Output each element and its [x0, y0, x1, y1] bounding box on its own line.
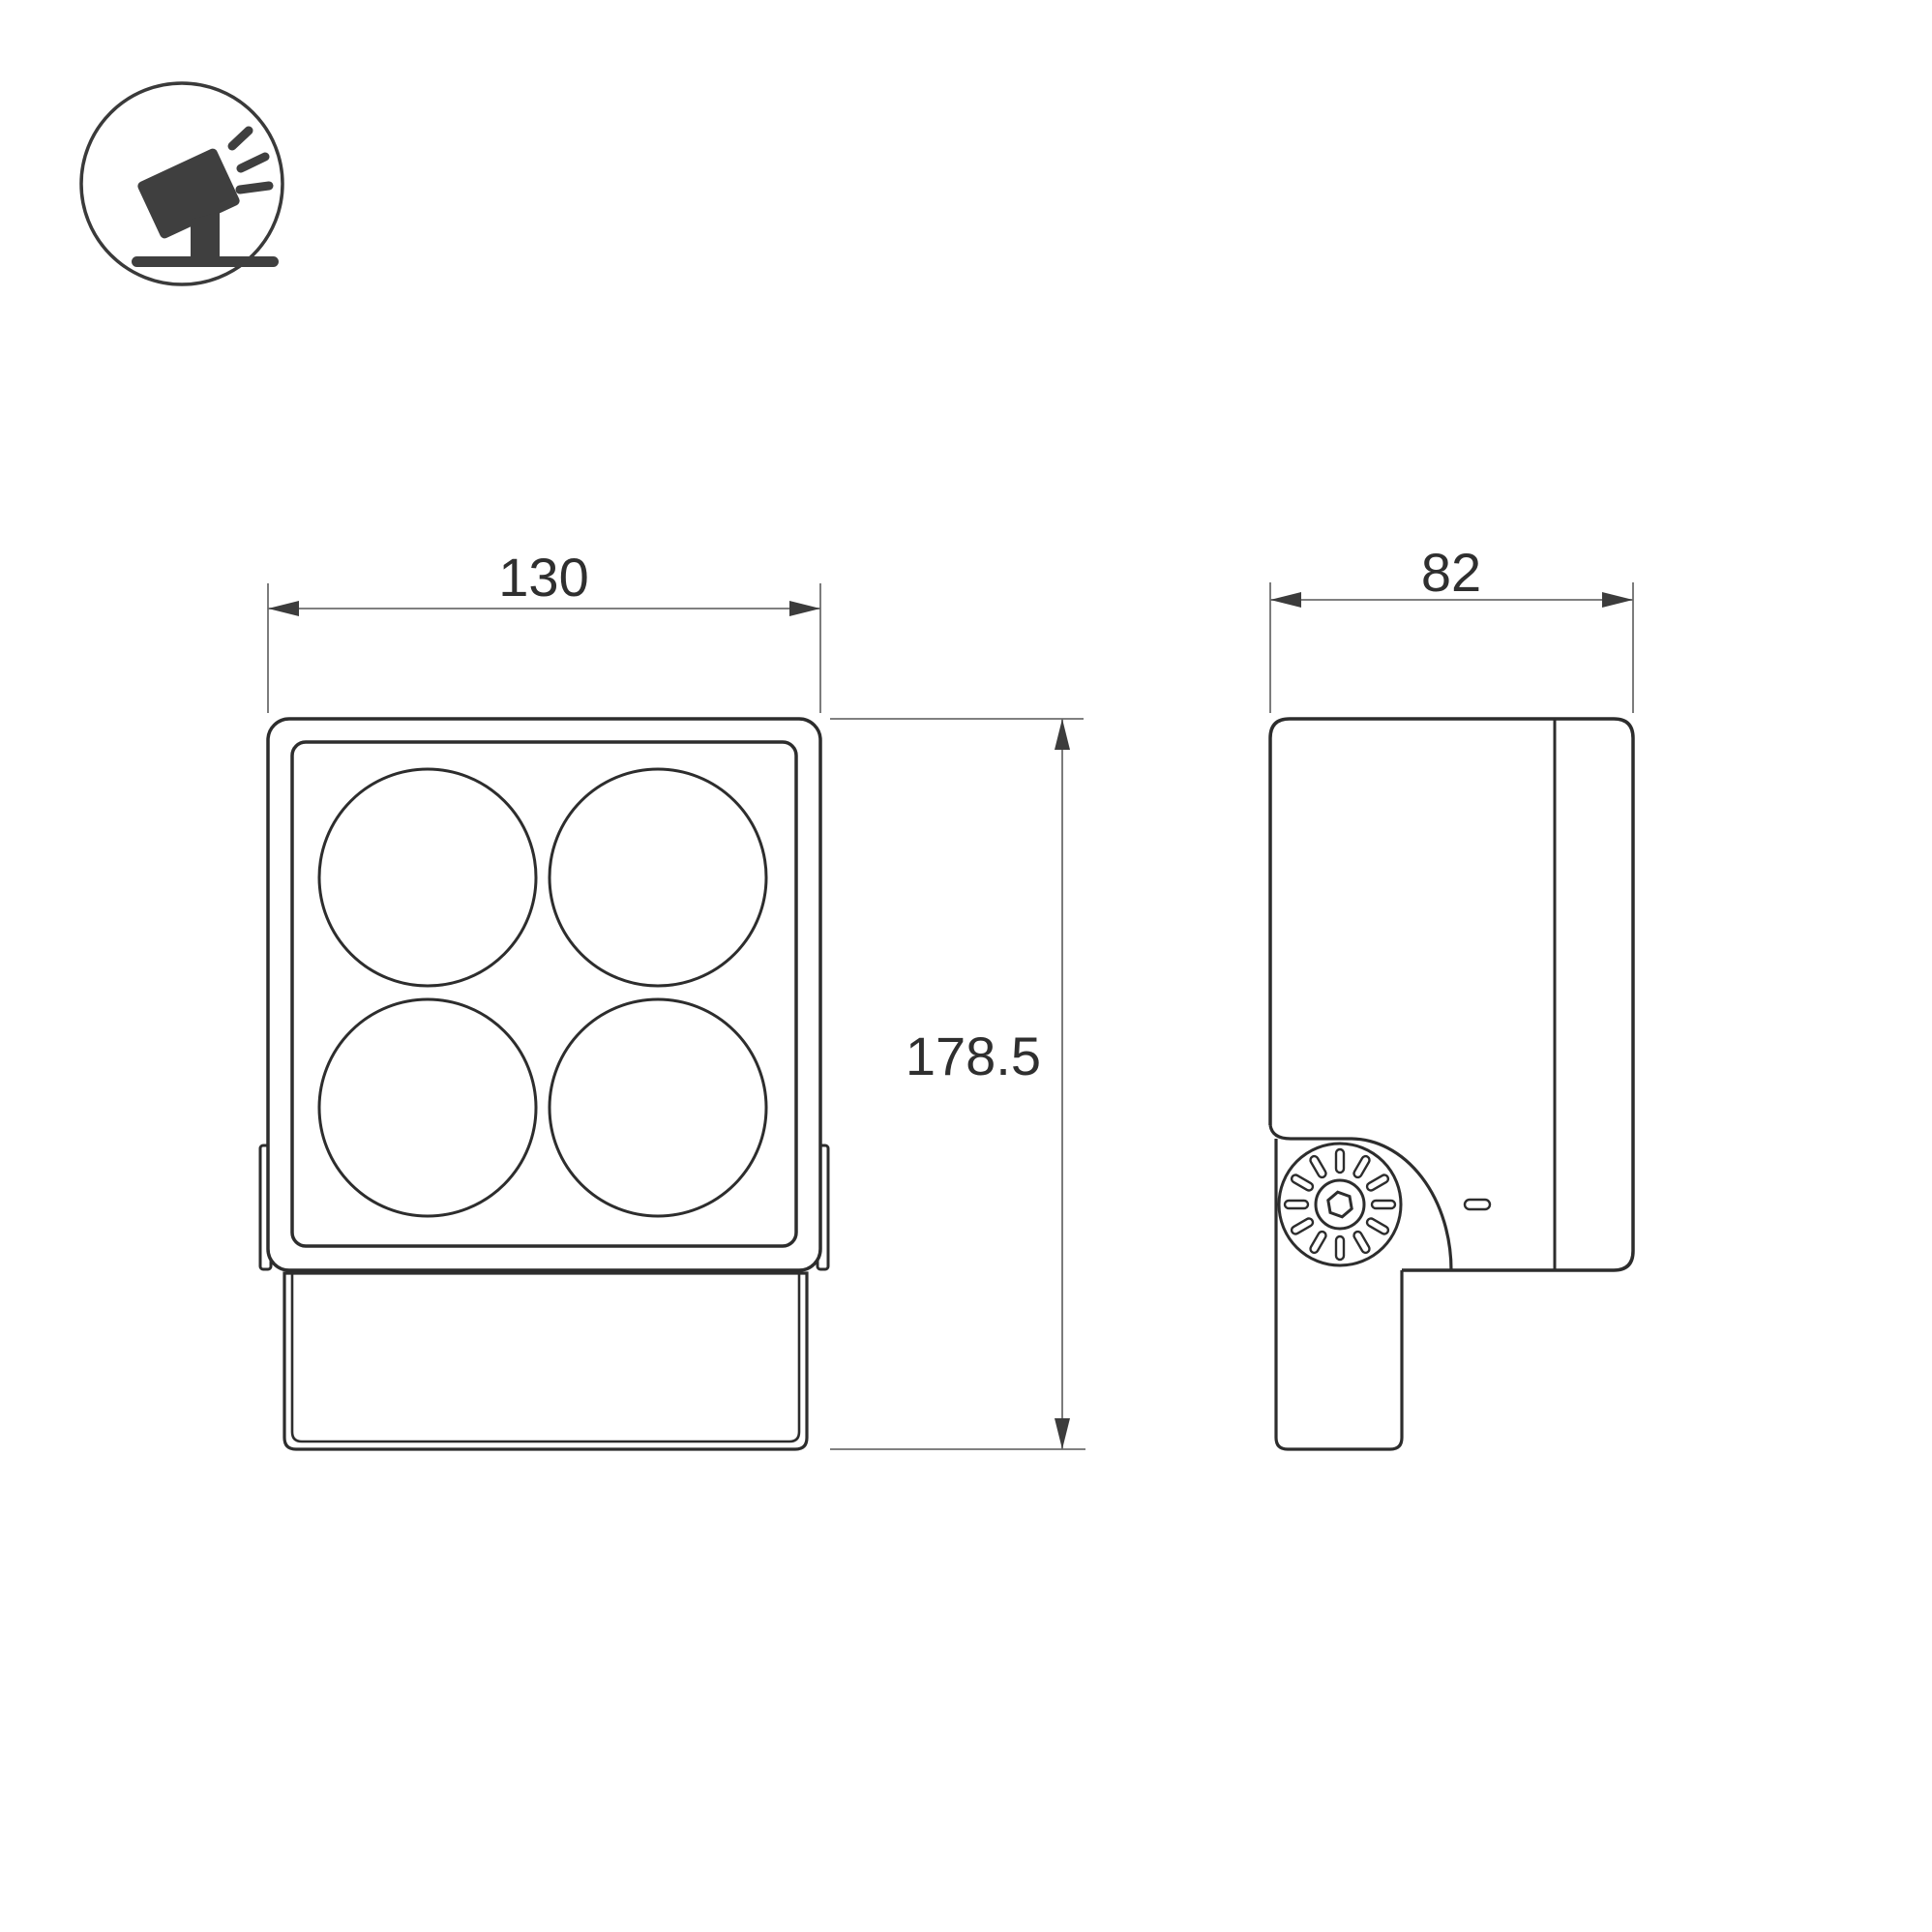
- floodlight-icon: [132, 131, 279, 267]
- floodlight-base-icon: [132, 256, 279, 267]
- floodlight-head-icon: [136, 147, 242, 240]
- front-height-dimension: 178.5: [830, 719, 1085, 1449]
- front-height-label: 178.5: [906, 1025, 1041, 1086]
- arrowhead-left-icon: [268, 601, 299, 616]
- drawing-svg: 130 178.5 82: [0, 0, 1932, 1932]
- side-view: [1270, 719, 1633, 1449]
- front-width-label: 130: [498, 547, 588, 608]
- arrowhead-right-icon: [1602, 592, 1633, 608]
- floodlight-logo-badge: [81, 83, 282, 284]
- arrowhead-left-icon: [1270, 592, 1301, 608]
- front-lower-body: [284, 1273, 807, 1449]
- pivot-knob: [1279, 1144, 1401, 1265]
- technical-drawing-page: 130 178.5 82: [0, 0, 1932, 1932]
- light-ray-icon: [241, 157, 265, 168]
- front-view: [260, 719, 828, 1449]
- arrowhead-up-icon: [1055, 719, 1070, 750]
- arrowhead-down-icon: [1055, 1418, 1070, 1449]
- light-ray-icon: [240, 186, 269, 190]
- light-ray-icon: [232, 131, 249, 146]
- side-depth-dimension: 82: [1270, 542, 1633, 713]
- knob-inner-circle: [1316, 1180, 1364, 1229]
- floodlight-stem-icon: [191, 212, 220, 262]
- side-depth-label: 82: [1421, 542, 1481, 603]
- body-screw-slot: [1465, 1200, 1490, 1209]
- arrowhead-right-icon: [789, 601, 820, 616]
- front-width-dimension: 130: [268, 547, 820, 713]
